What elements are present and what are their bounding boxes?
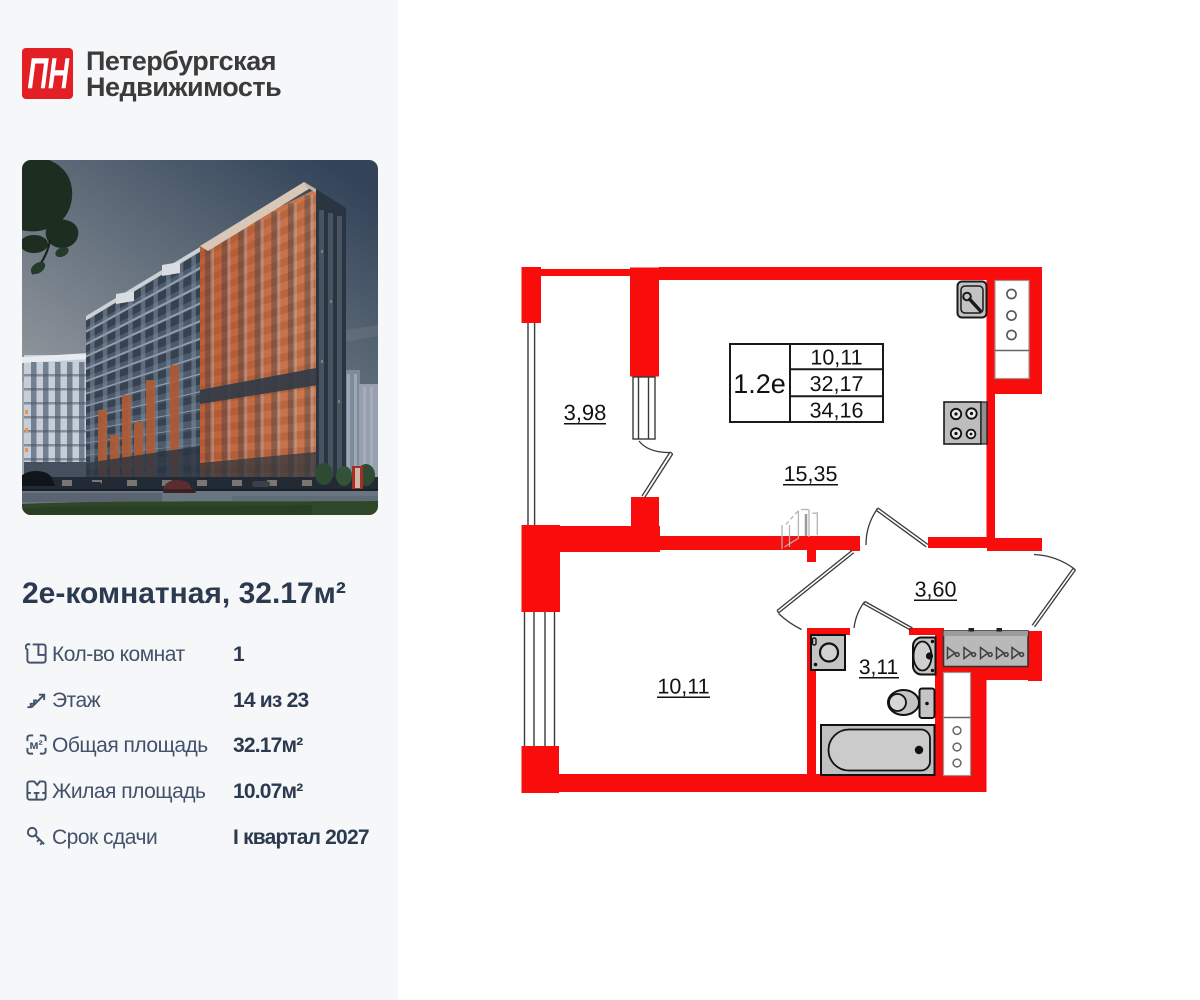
svg-text:3,60: 3,60 xyxy=(915,578,957,602)
svg-text:15,35: 15,35 xyxy=(784,462,838,486)
svg-text:34,16: 34,16 xyxy=(810,399,864,423)
svg-text:10,11: 10,11 xyxy=(657,675,709,699)
svg-text:м²: м² xyxy=(29,737,43,751)
svg-text:1.2е: 1.2е xyxy=(733,369,786,399)
svg-text:32,17: 32,17 xyxy=(810,372,864,396)
svg-text:3,11: 3,11 xyxy=(859,656,898,679)
svg-text:10,11: 10,11 xyxy=(810,346,862,370)
svg-text:3,98: 3,98 xyxy=(564,400,607,425)
